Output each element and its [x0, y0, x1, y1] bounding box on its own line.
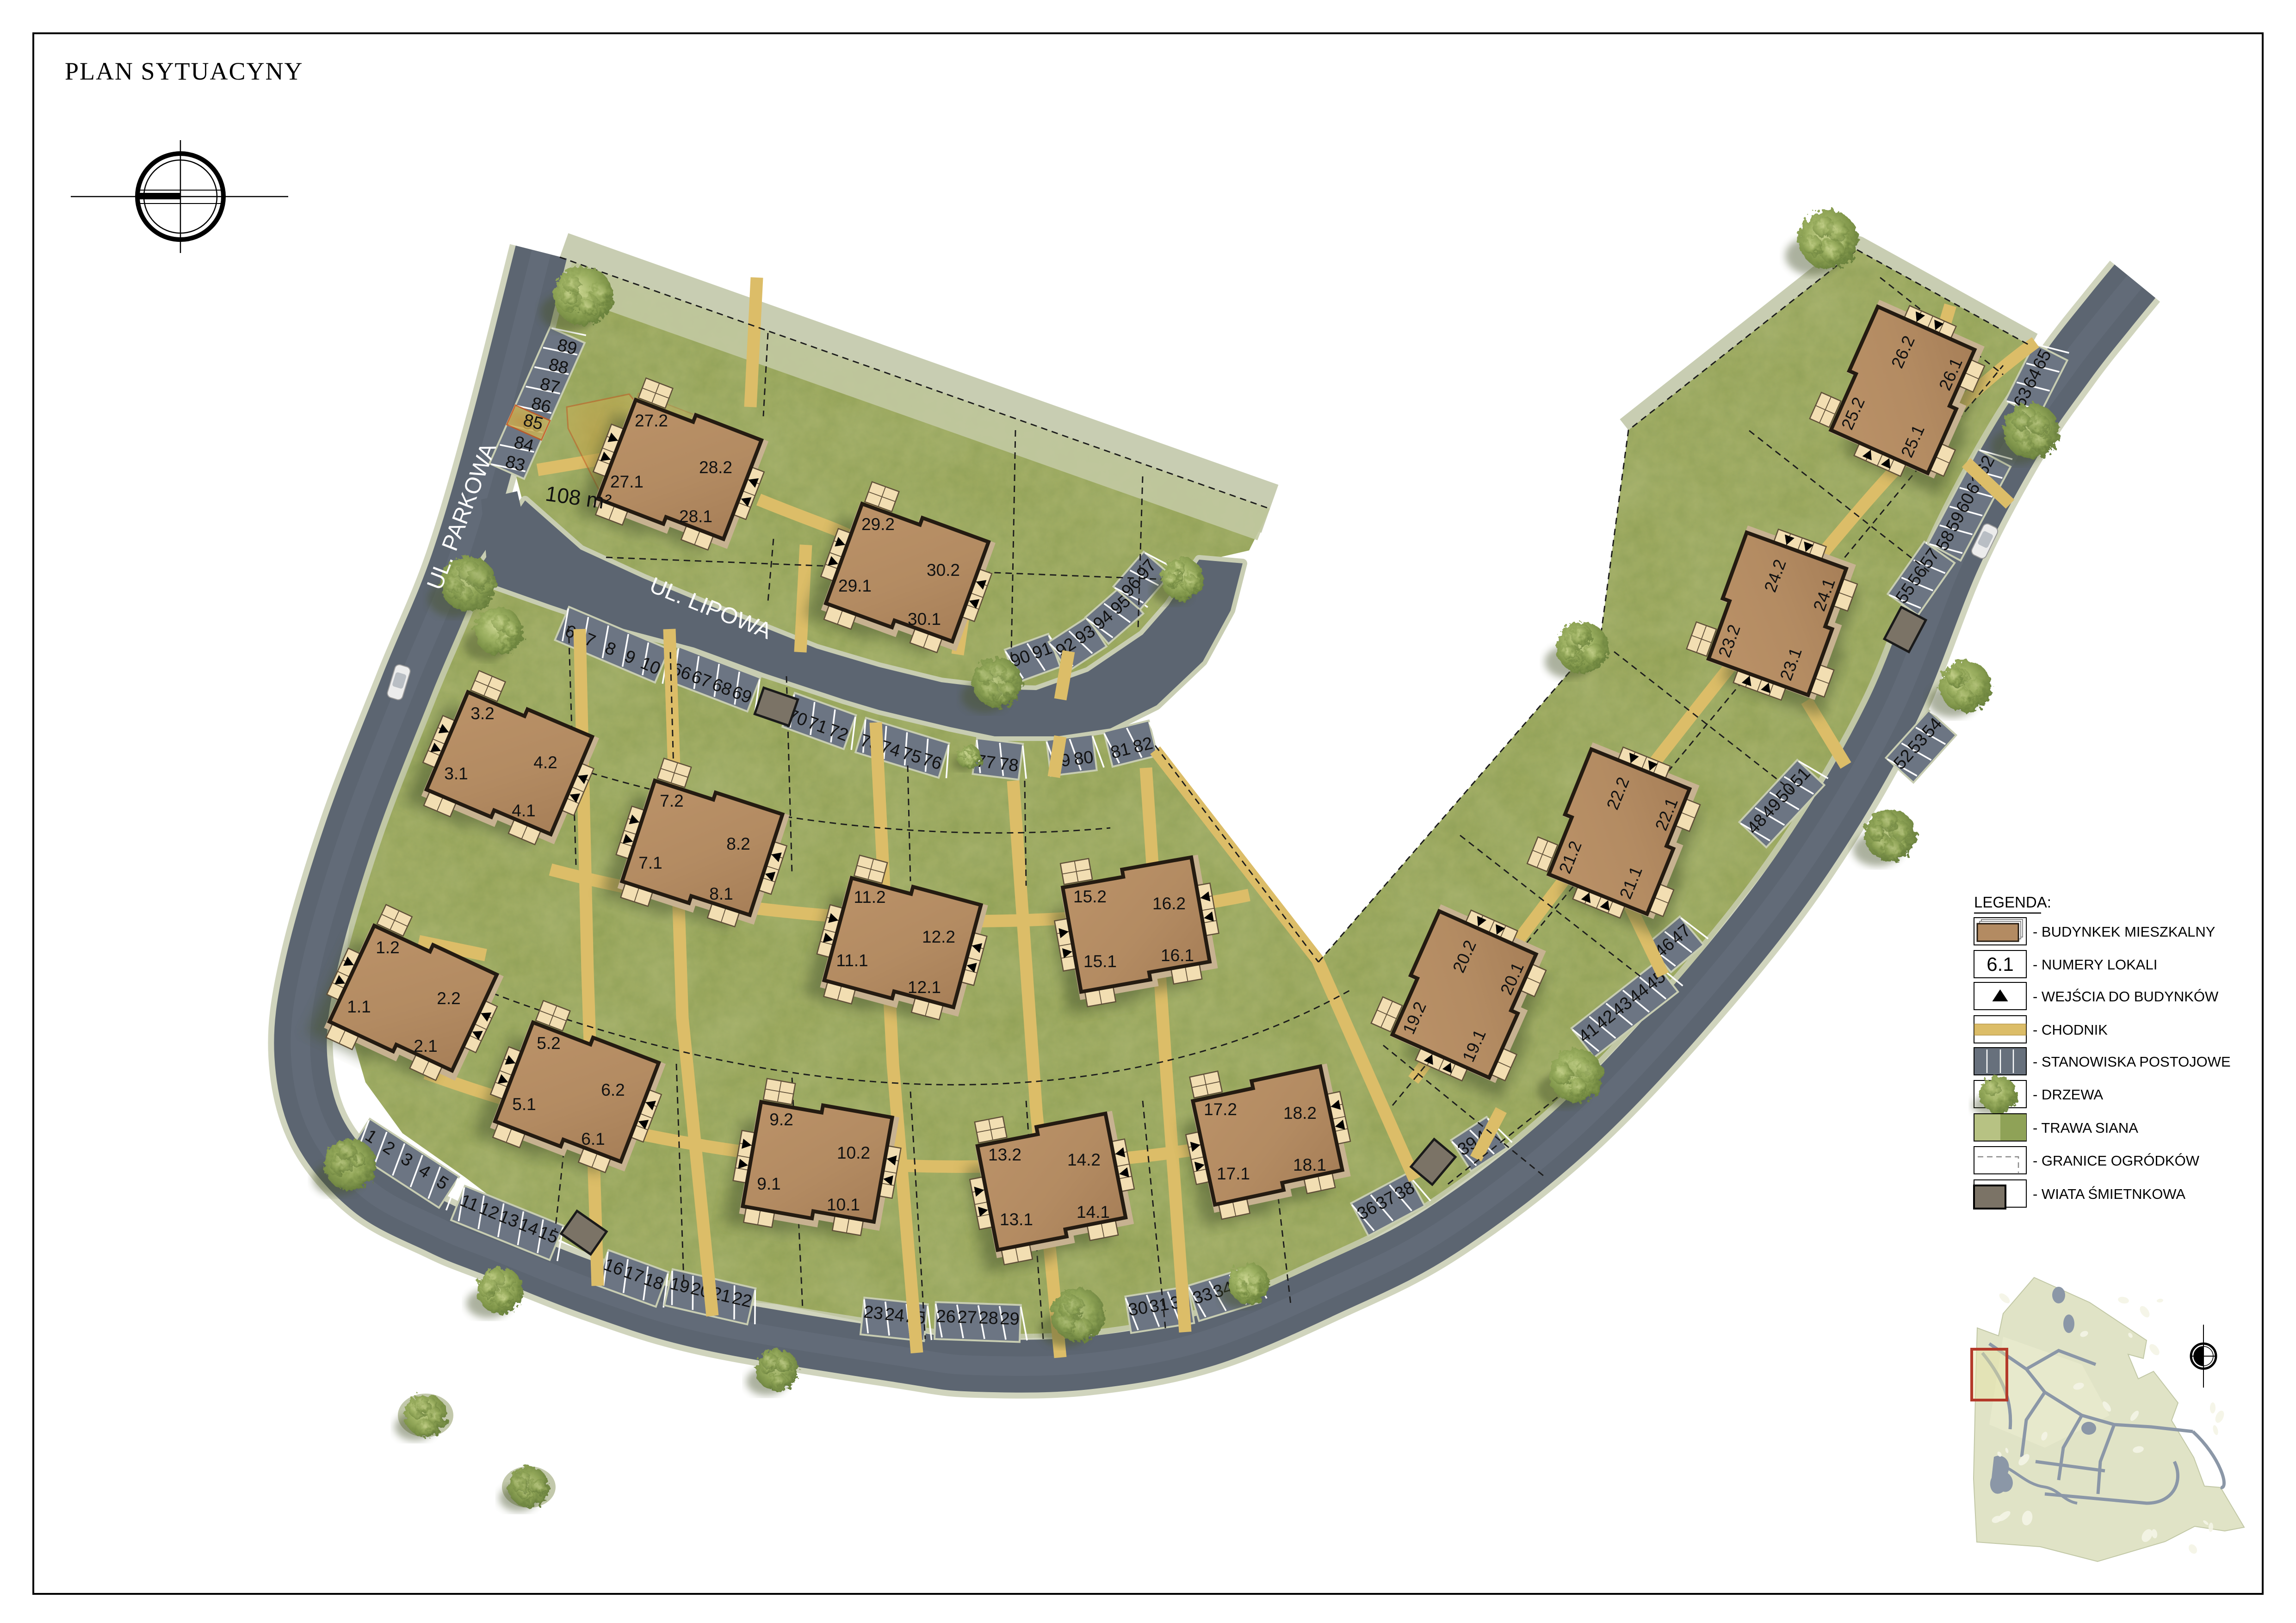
svg-text:29.2: 29.2: [861, 515, 895, 534]
svg-text:15.1: 15.1: [1083, 952, 1117, 971]
svg-text:16.1: 16.1: [1161, 946, 1194, 965]
svg-text:6.1: 6.1: [1987, 953, 2013, 975]
svg-text:13.2: 13.2: [988, 1145, 1021, 1164]
svg-text:- STANOWISKA POSTOJOWE: - STANOWISKA POSTOJOWE: [2033, 1054, 2231, 1070]
svg-text:28.1: 28.1: [679, 507, 712, 526]
svg-text:12.1: 12.1: [908, 978, 941, 997]
svg-text:1.1: 1.1: [347, 997, 371, 1016]
svg-text:6.2: 6.2: [601, 1080, 625, 1099]
svg-text:PLAN SYTUACYNY: PLAN SYTUACYNY: [65, 57, 303, 85]
svg-text:8.1: 8.1: [709, 884, 733, 903]
svg-text:17.2: 17.2: [1204, 1100, 1237, 1119]
svg-text:18.1: 18.1: [1293, 1155, 1326, 1174]
svg-text:29.1: 29.1: [838, 576, 872, 595]
svg-text:78: 78: [998, 754, 1020, 776]
svg-text:- WIATA ŚMIETNKOWA: - WIATA ŚMIETNKOWA: [2033, 1185, 2185, 1202]
svg-text:29: 29: [1000, 1309, 1020, 1329]
svg-text:4.1: 4.1: [512, 801, 535, 820]
svg-text:- NUMERY LOKALI: - NUMERY LOKALI: [2033, 957, 2157, 973]
svg-text:- CHODNIK: - CHODNIK: [2033, 1022, 2108, 1038]
svg-text:- DRZEWA: - DRZEWA: [2033, 1086, 2103, 1103]
svg-text:6.1: 6.1: [581, 1129, 605, 1148]
svg-text:11.2: 11.2: [854, 888, 885, 907]
svg-text:31: 31: [1148, 1295, 1170, 1317]
svg-text:- WEJŚCIA DO BUDYNKÓW: - WEJŚCIA DO BUDYNKÓW: [2033, 988, 2219, 1005]
svg-text:26: 26: [936, 1307, 956, 1327]
svg-text:27.1: 27.1: [610, 472, 644, 491]
svg-text:24: 24: [884, 1304, 905, 1326]
svg-text:- BUDYNKEK MIESZKALNY: - BUDYNKEK MIESZKALNY: [2033, 924, 2215, 940]
svg-text:18.2: 18.2: [1283, 1104, 1317, 1123]
svg-text:13.1: 13.1: [1000, 1210, 1033, 1229]
svg-text:7.2: 7.2: [660, 791, 683, 810]
svg-text:9.2: 9.2: [769, 1110, 793, 1129]
svg-text:14.2: 14.2: [1067, 1150, 1101, 1169]
svg-text:11.1: 11.1: [836, 951, 868, 970]
svg-text:30.1: 30.1: [908, 610, 941, 629]
svg-text:5.1: 5.1: [512, 1095, 536, 1114]
svg-text:LEGENDA:: LEGENDA:: [1974, 894, 2051, 911]
svg-text:15.2: 15.2: [1073, 887, 1107, 906]
svg-text:23: 23: [863, 1302, 884, 1324]
svg-text:12.2: 12.2: [922, 927, 955, 946]
svg-text:14.1: 14.1: [1077, 1203, 1110, 1222]
svg-text:80: 80: [1073, 747, 1095, 769]
svg-text:17.1: 17.1: [1217, 1164, 1250, 1183]
svg-text:28: 28: [978, 1308, 999, 1328]
svg-text:2.1: 2.1: [414, 1037, 437, 1055]
svg-text:8.2: 8.2: [726, 834, 750, 853]
svg-text:9.1: 9.1: [757, 1174, 780, 1193]
svg-text:- TRAWA SIANA: - TRAWA SIANA: [2033, 1120, 2138, 1136]
svg-text:10.1: 10.1: [827, 1195, 860, 1214]
svg-text:27.2: 27.2: [635, 411, 668, 430]
svg-text:4.2: 4.2: [533, 753, 557, 772]
svg-text:3.1: 3.1: [444, 764, 468, 783]
svg-text:30.2: 30.2: [927, 561, 960, 580]
svg-text:2.2: 2.2: [437, 989, 460, 1008]
svg-text:28.2: 28.2: [699, 458, 732, 477]
svg-text:1.2: 1.2: [376, 938, 399, 957]
svg-text:7.1: 7.1: [638, 853, 662, 872]
svg-text:16.2: 16.2: [1152, 894, 1186, 913]
svg-text:5.2: 5.2: [537, 1034, 560, 1053]
svg-text:3.2: 3.2: [470, 704, 494, 723]
svg-text:- GRANICE OGRÓDKÓW: - GRANICE OGRÓDKÓW: [2033, 1153, 2200, 1169]
svg-text:30: 30: [1127, 1298, 1149, 1320]
svg-text:27: 27: [957, 1308, 978, 1327]
svg-text:10.2: 10.2: [837, 1143, 870, 1162]
